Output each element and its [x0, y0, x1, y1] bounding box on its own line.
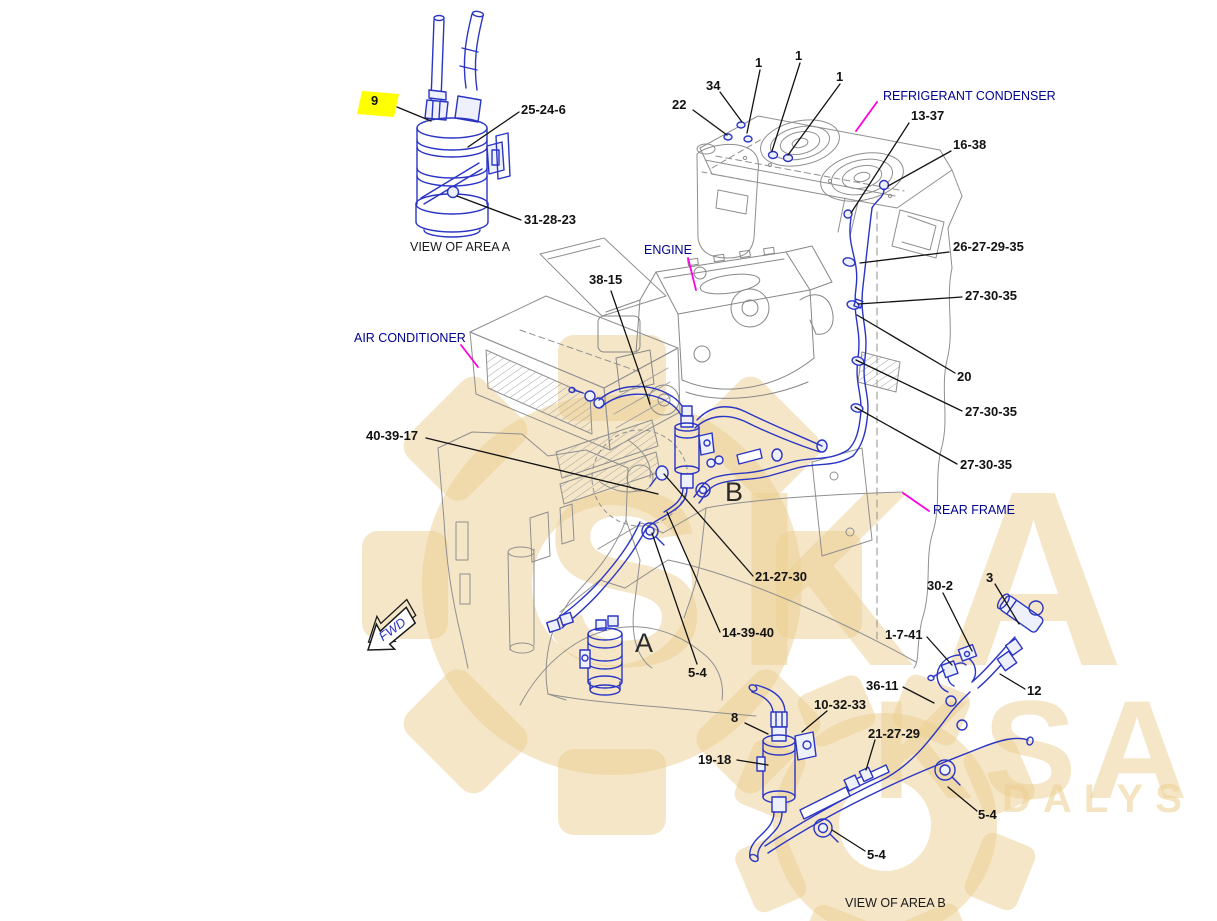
condenser-hose-run: [842, 181, 888, 457]
callout-3[interactable]: 3: [986, 570, 993, 585]
watermark: SKA KSA DALYS: [362, 335, 1198, 921]
callout-27-30-35-c[interactable]: 27-30-35: [960, 457, 1012, 472]
callout-34[interactable]: 34: [706, 78, 720, 93]
callout-40-39-17[interactable]: 40-39-17: [366, 428, 418, 443]
parts-diagram-canvas: SKA KSA DALYS: [0, 0, 1217, 921]
callout-19-18[interactable]: 19-18: [698, 752, 731, 767]
callout-13-37[interactable]: 13-37: [911, 108, 944, 123]
area-marker-b: B: [725, 477, 743, 508]
callout-5-4-a[interactable]: 5-4: [688, 665, 707, 680]
callout-14-39-40[interactable]: 14-39-40: [722, 625, 774, 640]
callout-31-28-23[interactable]: 31-28-23: [524, 212, 576, 227]
engine-label: ENGINE: [644, 243, 692, 257]
callout-1a[interactable]: 1: [755, 55, 762, 70]
air-conditioner-label: AIR CONDITIONER: [354, 331, 466, 345]
callout-26-27-29-35[interactable]: 26-27-29-35: [953, 239, 1024, 254]
callout-16-38[interactable]: 16-38: [953, 137, 986, 152]
callout-5-4-c[interactable]: 5-4: [867, 847, 886, 862]
view-of-area-b-caption: VIEW OF AREA B: [845, 896, 946, 910]
callout-1-7-41[interactable]: 1-7-41: [885, 627, 923, 642]
diagram-artwork: SKA KSA DALYS: [0, 0, 1217, 921]
callout-10-32-33[interactable]: 10-32-33: [814, 697, 866, 712]
callout-25-24-6[interactable]: 25-24-6: [521, 102, 566, 117]
receiver-drier-area-a-detail: [416, 11, 510, 237]
callout-30-2[interactable]: 30-2: [927, 578, 953, 593]
callout-27-30-35-b[interactable]: 27-30-35: [965, 404, 1017, 419]
watermark-word: DALYS: [1002, 777, 1194, 821]
callout-20[interactable]: 20: [957, 369, 971, 384]
callout-36-11[interactable]: 36-11: [866, 678, 899, 693]
callout-5-4-b[interactable]: 5-4: [978, 807, 997, 822]
callout-8[interactable]: 8: [731, 710, 738, 725]
callout-21-27-29[interactable]: 21-27-29: [868, 726, 920, 741]
area-marker-a: A: [635, 628, 653, 659]
rear-frame-label: REAR FRAME: [933, 503, 1015, 517]
callout-12[interactable]: 12: [1027, 683, 1041, 698]
callout-38-15[interactable]: 38-15: [589, 272, 622, 287]
refrigerant-condenser-label: REFRIGERANT CONDENSER: [883, 89, 1056, 103]
callout-1b[interactable]: 1: [795, 48, 802, 63]
callout-21-27-30[interactable]: 21-27-30: [755, 569, 807, 584]
callout-9[interactable]: 9: [371, 93, 378, 108]
callout-22[interactable]: 22: [672, 97, 686, 112]
callout-27-30-35-a[interactable]: 27-30-35: [965, 288, 1017, 303]
view-of-area-a-caption: VIEW OF AREA A: [410, 240, 510, 254]
callout-1c[interactable]: 1: [836, 69, 843, 84]
